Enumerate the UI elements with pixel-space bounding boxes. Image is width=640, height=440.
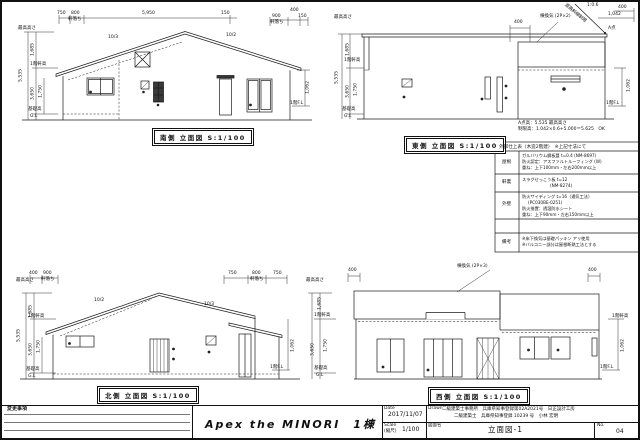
scale-label: Scale [384, 423, 396, 428]
finish-table-header: 外部仕上表（木造2階建） ※上記寸法にて [499, 144, 586, 150]
east-dim-total: 5,535 [335, 67, 340, 89]
north-caption-box: 北側 立面図 S:1/100 [97, 386, 199, 404]
south-foundation-label: 基礎高 [28, 107, 42, 112]
west-right-dim-1062: 1,062 [621, 335, 626, 357]
title-block-divider-1 [192, 405, 193, 440]
north-top-dim-800: 800 [252, 271, 261, 276]
west-dim-1685: 1,685 [318, 293, 323, 315]
change-items-label: 変更事項 [7, 407, 27, 413]
drawn-architect-line: 二級建築士 兵庫県知事登録 10239 号 小林 宏明 [454, 414, 558, 419]
west-dim-3650: 3,650 [311, 339, 316, 361]
drawing-sheet: 最高高さ 1,685 1階軒高 5,535 3,650 1,750 基礎高 G.… [0, 0, 640, 440]
south-caption-text: 南側 立面図 S:1/100 [154, 130, 252, 144]
north-max-height-label: 最高高さ [16, 278, 34, 283]
drawn-label: Drawn [428, 406, 443, 411]
north-top-dim-750: 750 [228, 271, 237, 276]
drawing-name-label: 図面名 [428, 423, 442, 428]
east-elevation-drawing [338, 4, 634, 119]
south-dim-1750: 1,750 [39, 81, 44, 103]
east-dim-1042: 1,042 [608, 12, 621, 17]
north-top-dim-750b: 750 [273, 271, 282, 276]
north-top-nokiochi: 軒落ち [41, 277, 55, 282]
west-top-dim-400l: 400 [348, 268, 357, 273]
south-caption-box: 南側 立面図 S:1/100 [152, 128, 254, 146]
drawing-name-value: 立面図-1 [488, 427, 523, 434]
east-fl-label: 1階F.L [606, 101, 619, 106]
south-top-dim-400: 400 [290, 8, 299, 13]
change-row-line-3 [4, 430, 190, 431]
east-caption-box: 東側 立面図 S:1/100 [404, 136, 506, 154]
north-dim-total: 5,535 [17, 325, 22, 347]
finish-row-roof-label: 屋根 [502, 159, 511, 165]
west-ridge-vent-label: 棟換気 (2P×3) [457, 264, 488, 269]
south-slope-left-label: 10/3 [108, 35, 118, 40]
east-note-apoint: A点高：5,535 最高高さ [518, 121, 567, 126]
finish-row-remarks-label: 備考 [502, 239, 511, 245]
east-dim-1750: 1,750 [354, 79, 359, 101]
west-dim-1750: 1,750 [324, 335, 329, 357]
project-title: Apex the MINORI 1棟 [205, 416, 376, 432]
sheet-no-value: 04 [616, 429, 624, 436]
date-value: 2017/11/07 [388, 412, 423, 419]
finish-row-wall-l3: 防火措置：透湿防水シート [522, 206, 572, 212]
west-eave-label: 1階軒高 [314, 313, 330, 318]
title-block-divider-4 [594, 422, 595, 440]
south-top-dim-800: 800 [71, 11, 80, 16]
east-gl-label: G.L [344, 114, 351, 119]
south-dim-1685: 1,685 [31, 39, 36, 61]
sheet-no-label: No. [597, 423, 604, 428]
west-fl-label: 1階F.L [600, 365, 613, 370]
north-eave-label: 1階軒高 [28, 314, 44, 319]
south-top-dim-900: 900 [272, 14, 281, 19]
west-caption-box: 西側 立面図 S:1/100 [428, 387, 530, 405]
south-top-dim-150b: 150 [298, 14, 307, 19]
finish-row-remarks-l2: ※バルコニー部分は屋根断熱工法とする [522, 242, 597, 248]
west-elevation-drawing [308, 22, 624, 379]
east-foundation-label: 基礎高 [342, 107, 356, 112]
change-row-line-2 [4, 422, 190, 423]
south-fl-label: 1階F.L [290, 101, 303, 106]
east-road-ratio-label: 1:0.6 [587, 3, 599, 8]
finish-row-wall-l4: 重ね：上下90mm・左右150mm以上 [522, 212, 594, 218]
south-slope-right-label: 10/2 [226, 33, 236, 38]
west-max-height-label: 最高高さ [306, 278, 324, 283]
finish-row-eaves-l2: (NM-8274) [550, 183, 572, 189]
north-foundation-label: 基礎高 [26, 367, 40, 372]
finish-row-roof-l3: 重ね：上下100mm・左右200mm以上 [522, 165, 596, 171]
east-right-dim-1062: 1,062 [627, 75, 632, 97]
west-foundation-label: 基礎高 [314, 366, 328, 371]
south-dim-3650: 3,650 [31, 83, 36, 105]
north-dim-1685: 1,685 [29, 301, 34, 323]
north-top-nokiochi2: 軒落ち [250, 277, 264, 282]
east-caption-text: 東側 立面図 S:1/100 [406, 138, 504, 152]
east-ridge-vent-label: 棟換気 (2P×2) [540, 14, 571, 19]
finish-row-eaves-l1: スラグせっこう板 t=12 [522, 177, 567, 183]
east-a-point-label: A点 [608, 26, 616, 31]
north-top-dim-900: 900 [43, 271, 52, 276]
east-note-limit: 制限高：1.042×0.6+5.000＝5.625 OK [518, 127, 605, 132]
south-right-dim-1062: 1,062 [306, 77, 311, 99]
south-max-height-label: 最高高さ [18, 26, 36, 31]
north-elevation-drawing [20, 275, 300, 379]
finish-row-wall-l2: (PC030BE-0251) [528, 200, 562, 206]
north-caption-text: 北側 立面図 S:1/100 [99, 388, 197, 402]
south-elevation-drawing [22, 15, 312, 120]
finish-row-wall-l1: 防火サイディング t=16（通気工法） [522, 194, 592, 200]
finish-row-roof-l2: 防火認定：アスファルトルーフィング (W) [522, 159, 602, 165]
change-row-line-1 [4, 414, 190, 415]
east-dim-400b: 400 [618, 5, 627, 10]
south-eave-label: 1階軒高 [30, 62, 46, 67]
north-slope-right-label: 10/3 [204, 302, 214, 307]
south-top-dim-150: 150 [221, 11, 230, 16]
south-top-nokiochi2: 軒落ち [270, 20, 284, 25]
south-top-nokiochi: 軒落ち [68, 17, 82, 22]
south-gl-label: G.L [30, 114, 37, 119]
east-eave-label: 1階軒高 [344, 58, 360, 63]
finish-row-eaves-label: 軒裏 [502, 179, 511, 185]
south-top-dim-750: 750 [57, 11, 66, 16]
finish-row-roof-l1: ガルバリウム鋼板葺 t=0.4 (NM-8697) [522, 153, 596, 159]
north-top-dim-400: 400 [29, 271, 38, 276]
west-right-eave-label: 1階軒高 [612, 314, 628, 319]
west-gl-label: G.L [316, 373, 323, 378]
east-dim-3650: 3,650 [346, 81, 351, 103]
finish-row-remarks-l1: ※床下換気は基礎パッキン アリ使用 [522, 236, 590, 242]
west-caption-text: 西側 立面図 S:1/100 [430, 389, 528, 403]
scale-sub-label: (縮尺) [384, 429, 397, 434]
scale-value: 1/100 [402, 427, 419, 434]
north-dim-3650: 3,650 [29, 339, 34, 361]
north-slope-left-label: 10/2 [94, 298, 104, 303]
north-right-dim-1062: 1,062 [291, 335, 296, 357]
north-fl-label: 1階F.L [270, 365, 283, 370]
south-top-dim-5950: 5,950 [142, 11, 155, 16]
west-top-dim-400r: 400 [588, 268, 597, 273]
drawn-office-line: 二級建築士事務所 兵庫県知事登録第02A2021号 日正設計工房 [442, 407, 575, 412]
south-dim-total: 5,535 [19, 65, 24, 87]
title-block-top-border [2, 405, 640, 406]
east-top-dim-400: 400 [514, 20, 523, 25]
north-gl-label: G.L [28, 374, 35, 379]
east-max-height-label: 最高高さ [334, 15, 352, 20]
finish-row-wall-label: 外壁 [502, 201, 511, 207]
north-dim-1750: 1,750 [37, 336, 42, 358]
